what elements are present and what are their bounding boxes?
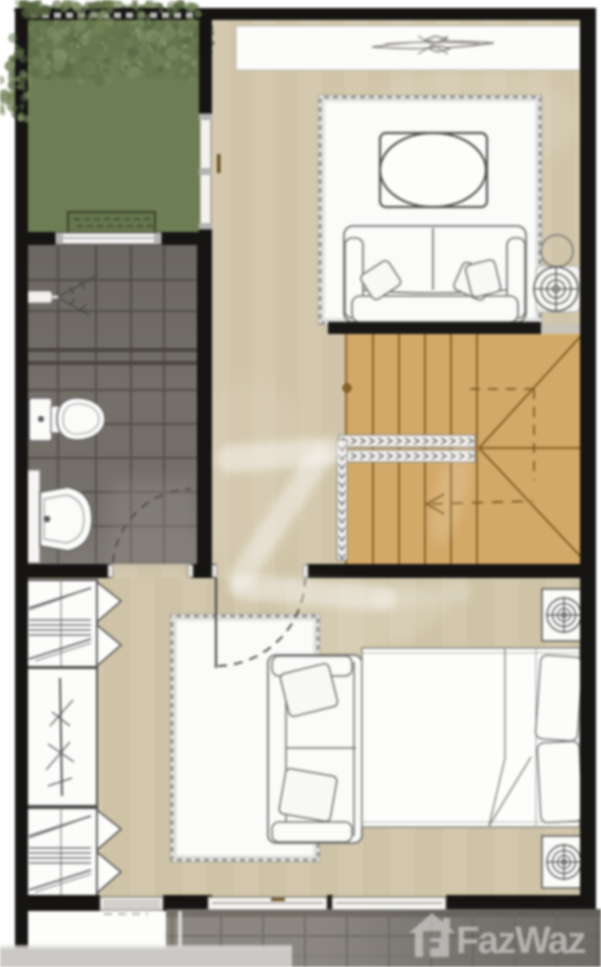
svg-text:FazWaz: FazWaz [456, 920, 585, 962]
